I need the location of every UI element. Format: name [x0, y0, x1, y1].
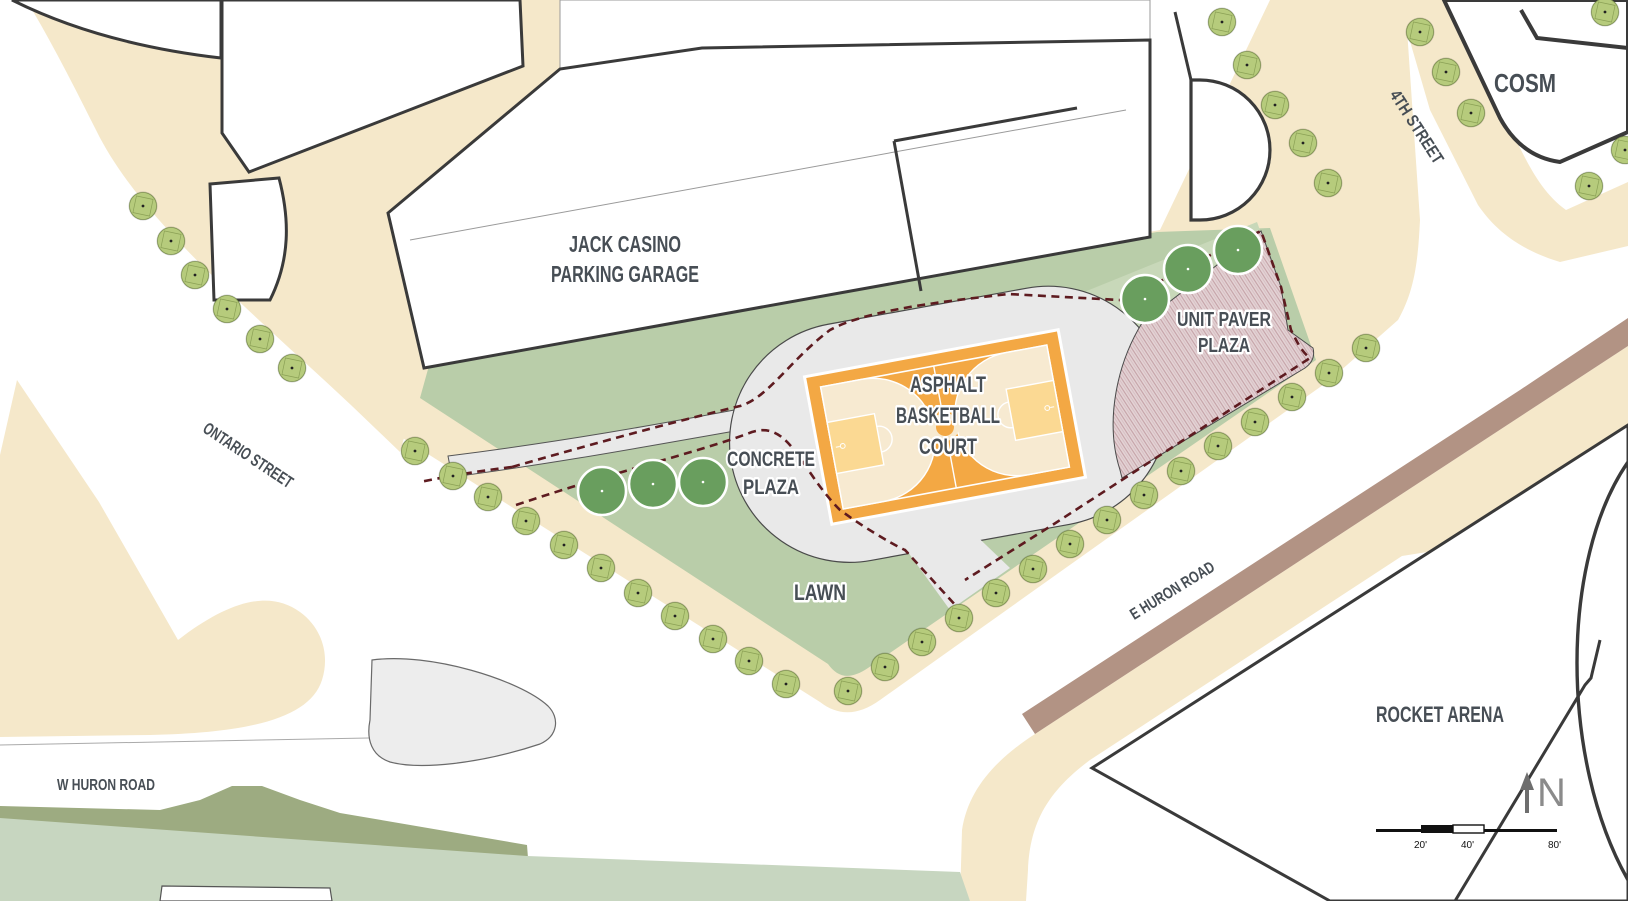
svg-text:PARKING GARAGE: PARKING GARAGE	[551, 261, 699, 287]
svg-text:N: N	[1537, 771, 1566, 815]
svg-text:PLAZA: PLAZA	[1198, 335, 1250, 357]
svg-text:BASKETBALL: BASKETBALL	[896, 403, 1000, 428]
svg-text:ROCKET ARENA: ROCKET ARENA	[1376, 702, 1504, 727]
svg-text:CONCRETE: CONCRETE	[727, 448, 815, 471]
svg-text:W HURON ROAD: W HURON ROAD	[57, 777, 155, 794]
svg-text:COSM: COSM	[1494, 68, 1556, 98]
svg-text:UNIT PAVER: UNIT PAVER	[1177, 309, 1271, 331]
svg-text:JACK CASINO: JACK CASINO	[569, 231, 681, 257]
svg-text:40': 40'	[1461, 840, 1474, 851]
svg-text:COURT: COURT	[919, 434, 977, 459]
svg-text:PLAZA: PLAZA	[743, 476, 799, 499]
svg-text:LAWN: LAWN	[794, 580, 846, 605]
svg-text:20': 20'	[1414, 840, 1427, 851]
svg-text:ASPHALT: ASPHALT	[910, 372, 986, 397]
svg-text:80': 80'	[1548, 840, 1561, 851]
